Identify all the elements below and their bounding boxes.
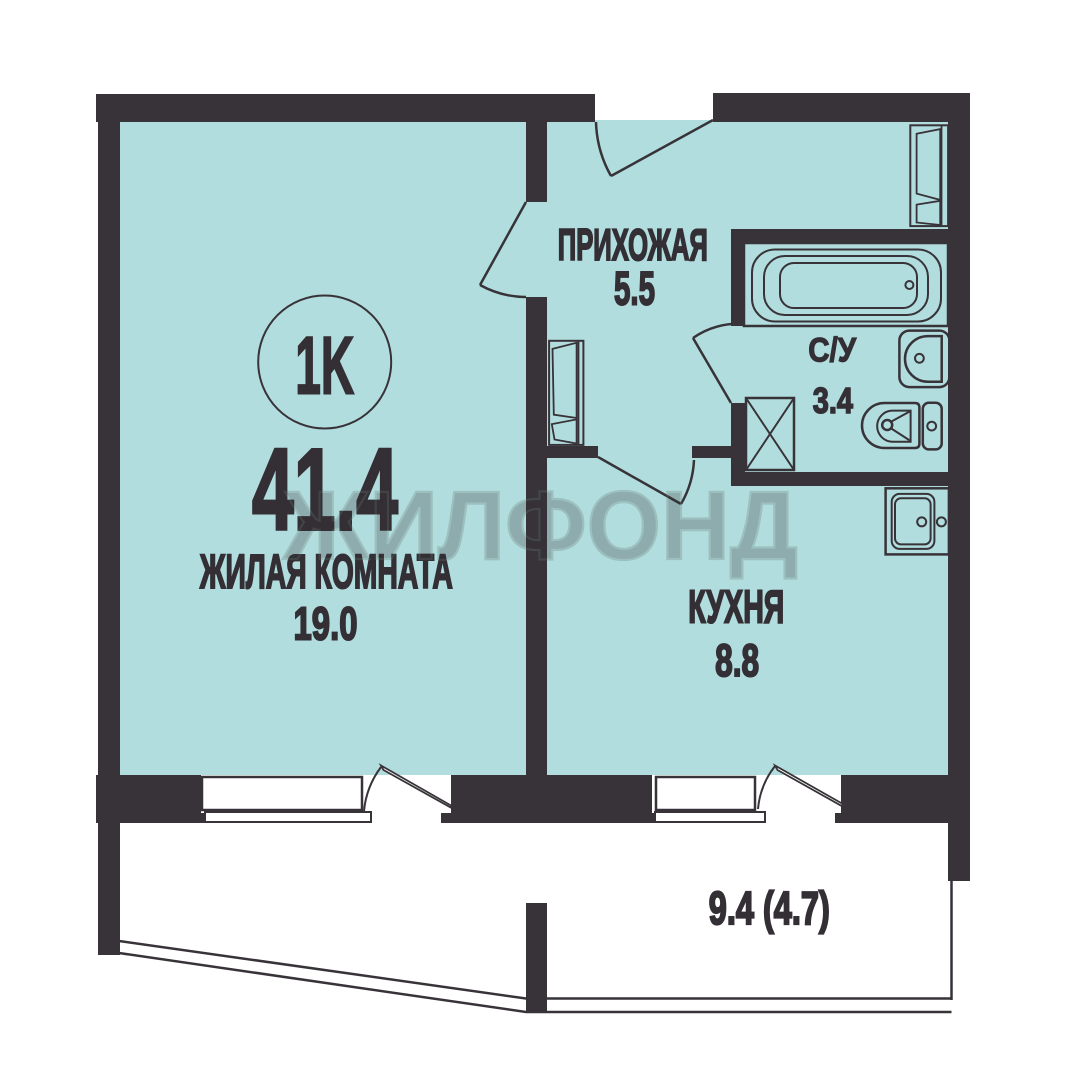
svg-text:5.5: 5.5 [614,262,655,315]
svg-text:С/У: С/У [808,331,856,369]
svg-text:КУХНЯ: КУХНЯ [688,581,784,633]
svg-text:ЖИЛФОНД: ЖИЛФОНД [282,471,798,580]
svg-text:9.4 (4.7): 9.4 (4.7) [709,882,830,934]
svg-text:3.4: 3.4 [813,380,853,421]
svg-text:1K: 1K [295,321,354,412]
svg-text:19.0: 19.0 [294,597,358,649]
svg-text:8.8: 8.8 [715,635,759,686]
